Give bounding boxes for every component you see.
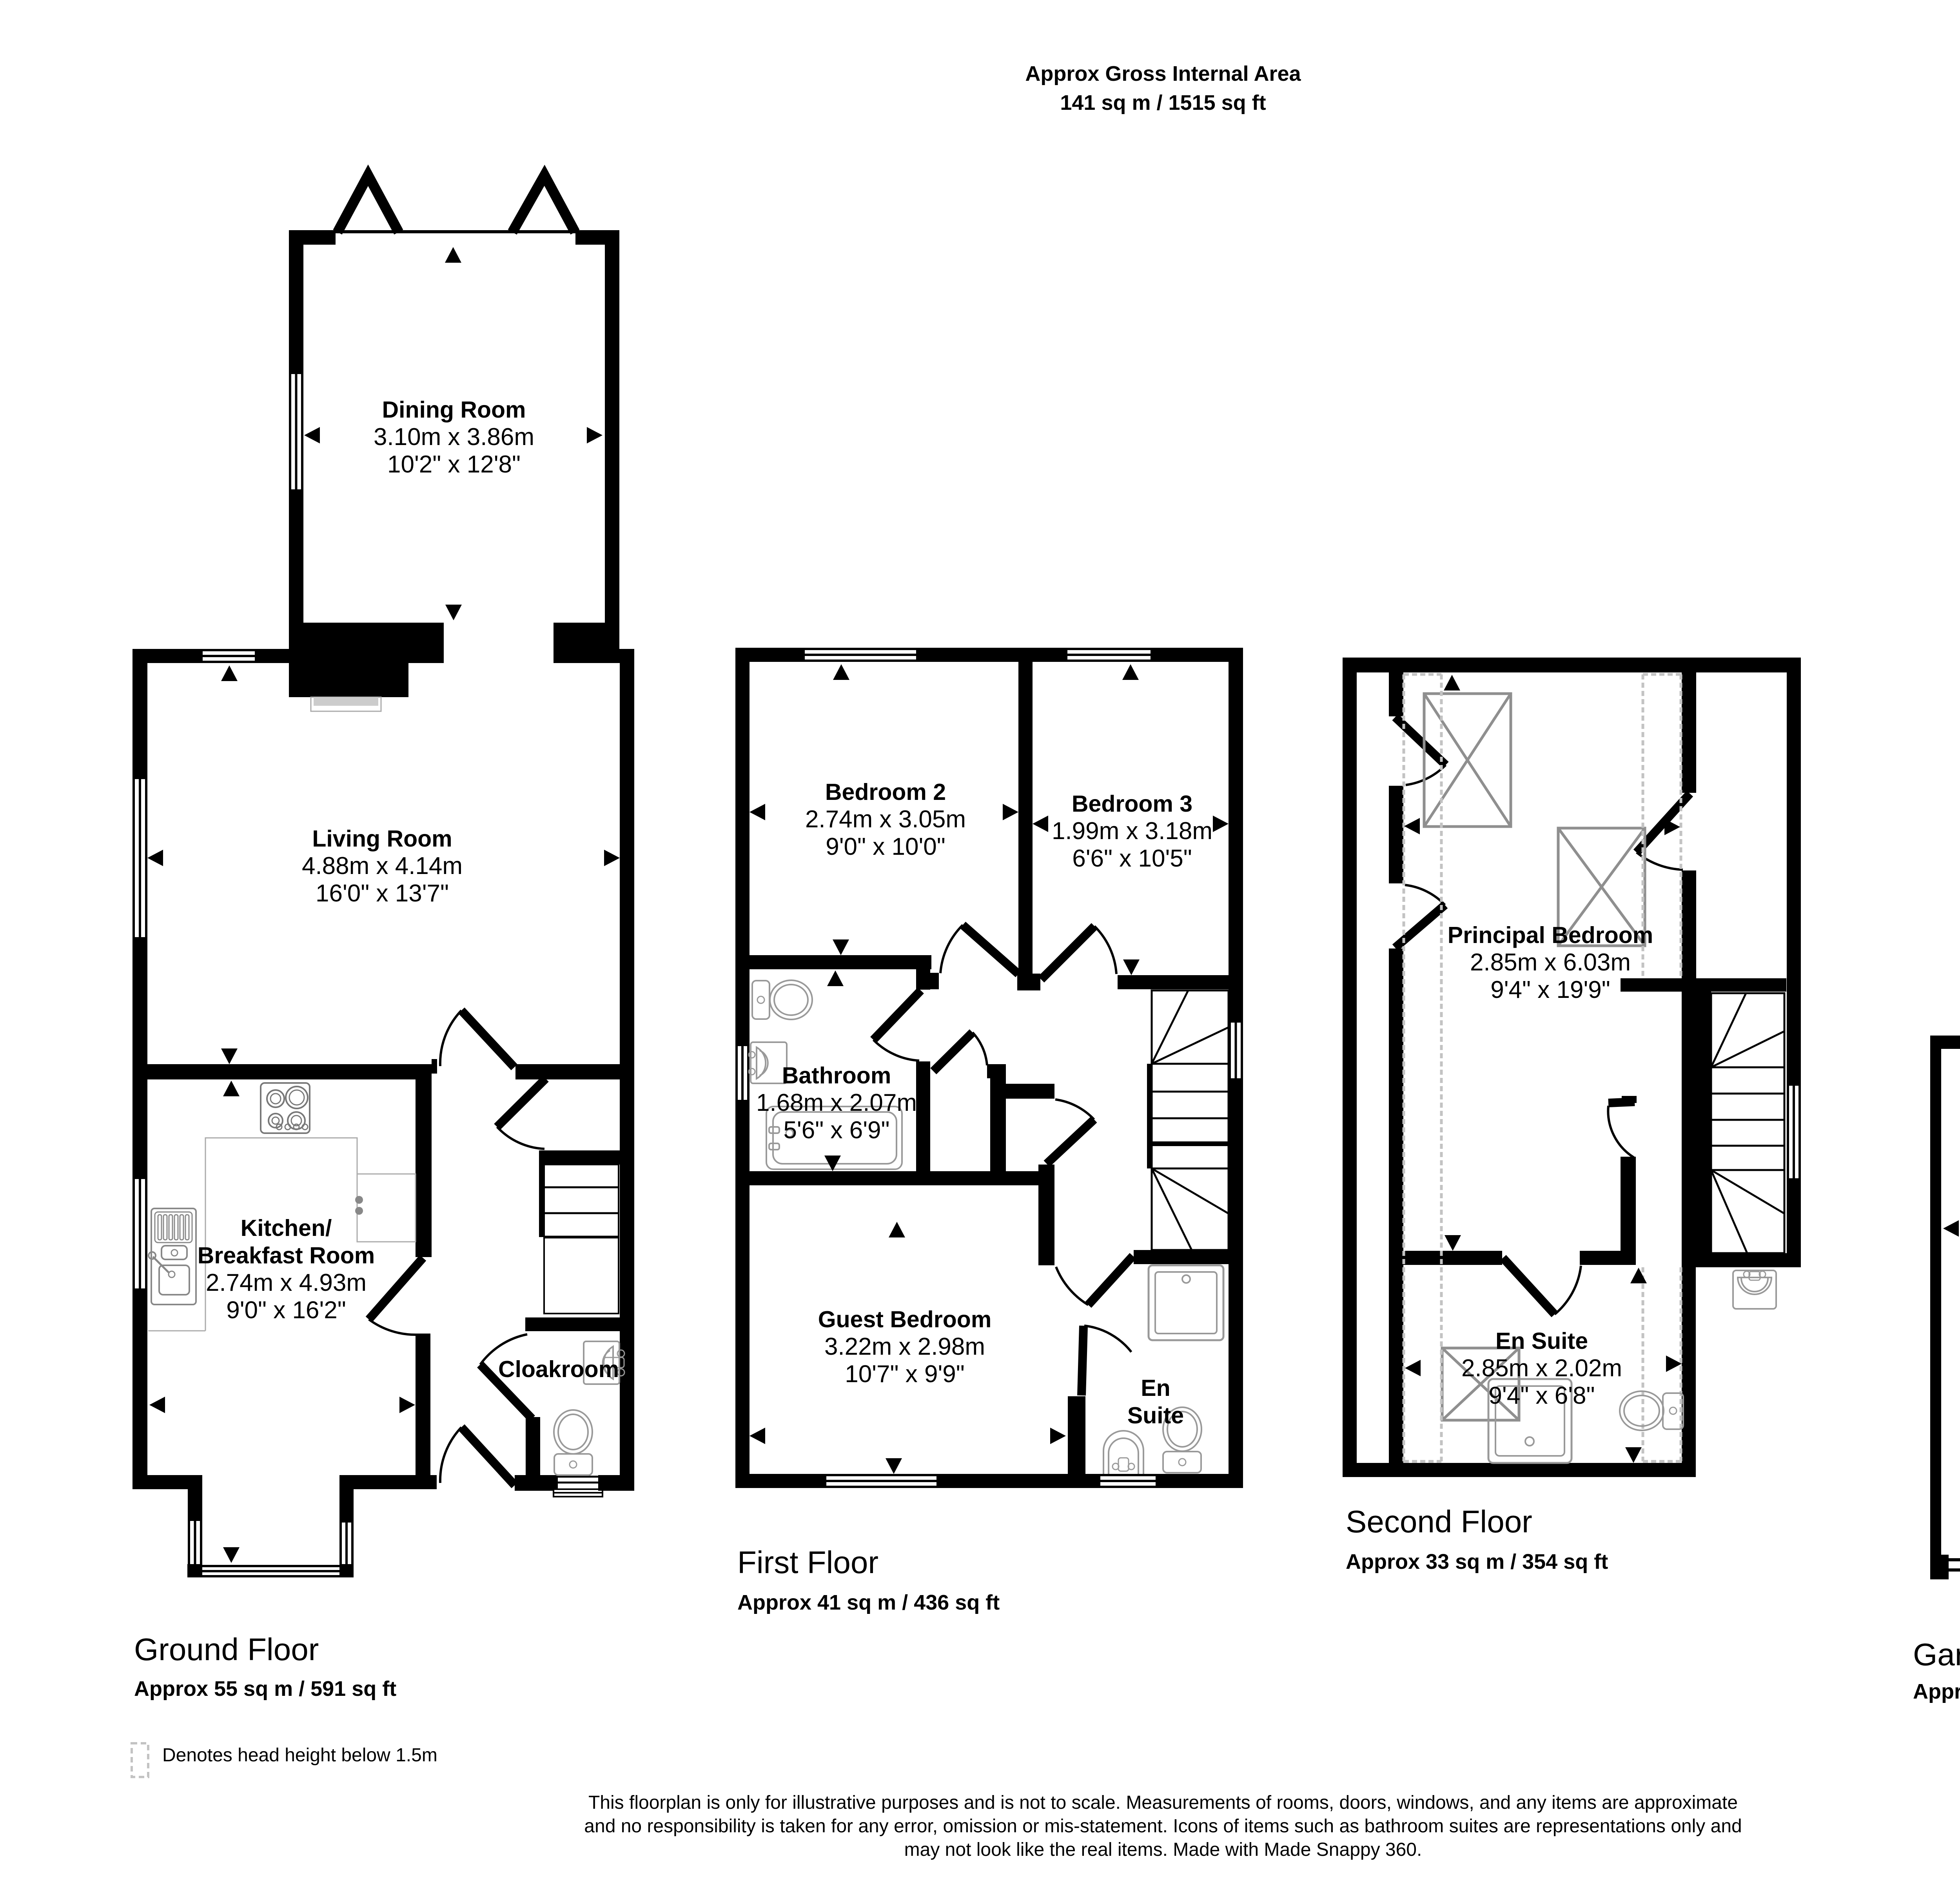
svg-text:Ground Floor: Ground Floor (134, 1632, 319, 1667)
svg-text:Cloakroom: Cloakroom (498, 1356, 619, 1382)
svg-text:9'0" x 10'0": 9'0" x 10'0" (826, 833, 946, 860)
svg-text:Garage: Garage (1913, 1637, 1960, 1672)
svg-text:Approx 55 sq m / 591 sq ft: Approx 55 sq m / 591 sq ft (134, 1677, 396, 1701)
svg-text:9'4" x 6'8": 9'4" x 6'8" (1488, 1382, 1595, 1409)
svg-text:Bedroom 3: Bedroom 3 (1072, 791, 1192, 817)
svg-text:En: En (1141, 1375, 1170, 1401)
svg-text:141 sq m / 1515 sq ft: 141 sq m / 1515 sq ft (1060, 91, 1266, 114)
svg-text:Living Room: Living Room (312, 826, 452, 852)
svg-text:Bedroom 2: Bedroom 2 (825, 779, 946, 805)
svg-text:9'0" x 16'2": 9'0" x 16'2" (226, 1297, 346, 1324)
svg-text:6'6" x 10'5": 6'6" x 10'5" (1072, 845, 1192, 872)
svg-text:may not look like the real ite: may not look like the real items. Made w… (904, 1839, 1422, 1860)
svg-text:and no responsibility is taken: and no responsibility is taken for any e… (584, 1816, 1742, 1837)
svg-text:10'2" x 12'8": 10'2" x 12'8" (387, 451, 521, 478)
svg-text:1.68m x 2.07m: 1.68m x 2.07m (756, 1089, 917, 1116)
svg-text:Approx 33 sq m / 354 sq ft: Approx 33 sq m / 354 sq ft (1346, 1550, 1608, 1573)
svg-text:Dining Room: Dining Room (382, 397, 526, 423)
svg-text:3.10m x 3.86m: 3.10m x 3.86m (374, 423, 534, 451)
svg-text:Second Floor: Second Floor (1346, 1504, 1532, 1539)
svg-text:1.99m x 3.18m: 1.99m x 3.18m (1052, 818, 1212, 845)
svg-text:5'6" x 6'9": 5'6" x 6'9" (783, 1117, 889, 1144)
svg-text:First Floor: First Floor (737, 1545, 878, 1580)
svg-text:Breakfast Room: Breakfast Room (198, 1243, 375, 1268)
svg-text:Approx 12 sq m / 134 sq ft: Approx 12 sq m / 134 sq ft (1913, 1680, 1960, 1703)
svg-text:This floorplan is only for ill: This floorplan is only for illustrative … (588, 1792, 1738, 1813)
svg-text:Approx Gross Internal Area: Approx Gross Internal Area (1025, 62, 1301, 85)
svg-text:2.74m x 3.05m: 2.74m x 3.05m (805, 806, 966, 833)
svg-text:2.85m x 6.03m: 2.85m x 6.03m (1470, 949, 1631, 976)
svg-text:Bathroom: Bathroom (782, 1063, 891, 1088)
svg-text:Principal Bedroom: Principal Bedroom (1448, 922, 1653, 948)
svg-text:10'7" x 9'9": 10'7" x 9'9" (845, 1361, 965, 1388)
svg-text:Kitchen/: Kitchen/ (241, 1215, 332, 1241)
svg-text:9'4" x 19'9": 9'4" x 19'9" (1490, 976, 1610, 1003)
svg-text:Approx 41 sq m / 436 sq ft: Approx 41 sq m / 436 sq ft (737, 1591, 1000, 1614)
svg-text:En Suite: En Suite (1495, 1328, 1588, 1354)
svg-text:4.88m x 4.14m: 4.88m x 4.14m (302, 852, 463, 879)
svg-text:Guest Bedroom: Guest Bedroom (818, 1306, 992, 1332)
svg-text:2.74m x 4.93m: 2.74m x 4.93m (206, 1269, 367, 1296)
svg-text:Denotes head height below 1.5m: Denotes head height below 1.5m (162, 1745, 437, 1766)
svg-text:16'0" x 13'7": 16'0" x 13'7" (316, 880, 449, 907)
svg-text:Suite: Suite (1127, 1403, 1184, 1428)
svg-text:3.22m x 2.98m: 3.22m x 2.98m (824, 1333, 985, 1360)
svg-text:2.85m x 2.02m: 2.85m x 2.02m (1461, 1355, 1622, 1382)
